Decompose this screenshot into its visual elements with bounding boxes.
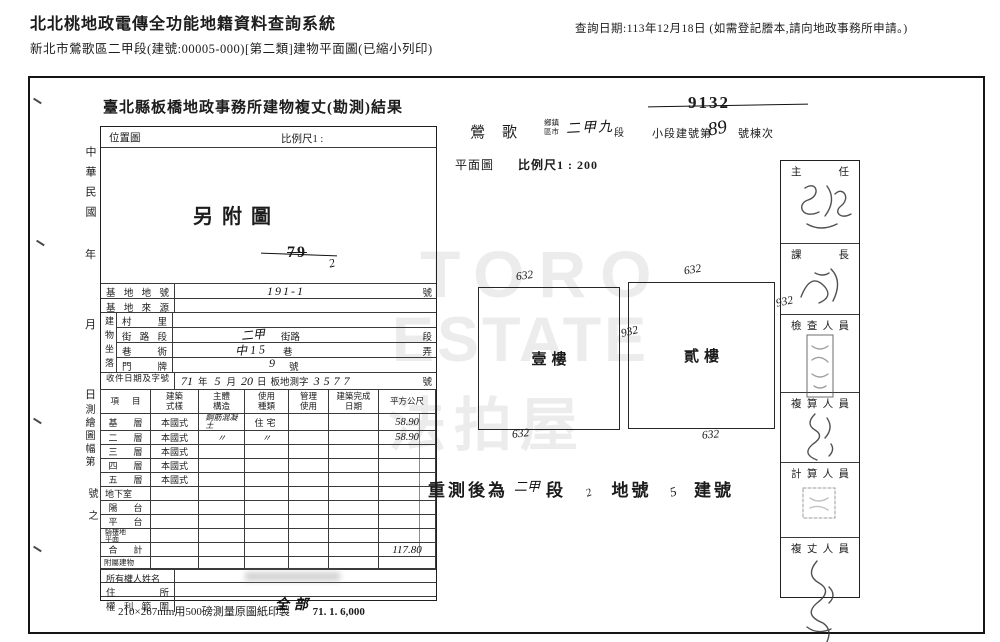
rights-label: 權利範圍 (101, 597, 175, 612)
receipt-code: 板地測字 (271, 374, 309, 388)
floor-row: 四層 本國式 (101, 459, 436, 473)
margin-sheet-no: 號之 (84, 488, 99, 532)
annex-label: 附屬建物 (104, 557, 150, 568)
lot-value: 191-1 (267, 284, 305, 299)
dim-top: 632 (515, 269, 534, 283)
section-unit: 段 (614, 124, 624, 139)
owner-name-label: 所有權人姓名 (101, 570, 175, 582)
floors-header-row: 項目 建築式樣 主體構造 使用種類 管理使用 建築完成日期 平方公尺 (101, 390, 436, 414)
col-mgmt: 管理使用 (289, 390, 329, 414)
situs-group-label: 建物坐落 (101, 313, 117, 372)
query-date-note: 查詢日期:113年12月18日 (如需登記謄本,請向地政事務所申請。) (575, 20, 908, 36)
owner-addr-row: 住所 (101, 583, 436, 597)
lot-source-label: 基地來源 (101, 299, 175, 312)
signoff-label: 複算人員 (791, 396, 849, 411)
floor-style: 本國式 (151, 431, 199, 445)
signoff-section-chief: 主任 (781, 164, 859, 244)
lot-label: 基地地號 (101, 284, 175, 298)
floor-label: 二層 (109, 431, 143, 444)
door-row: 門牌 9 號 (117, 358, 436, 373)
street-row: 街路段 二甲 街路 段 (117, 328, 436, 343)
street-unit: 段 (422, 329, 432, 343)
signoff-label: 主任 (791, 164, 849, 179)
floors-table: 項目 建築式樣 主體構造 使用種類 管理使用 建築完成日期 平方公尺 基層 本國… (100, 389, 436, 569)
resurvey-line: 重測後為 二甲 段 2 地號 5 建號 (428, 476, 734, 501)
signoff-label: 複丈人員 (791, 541, 849, 556)
col-area: 平方公尺 (379, 390, 436, 414)
resurvey-bldg-hand: 5 (668, 483, 678, 500)
signoff-column: 主任 課長 檢查人員 複算人員 (780, 160, 860, 598)
total-row: 合計 117.80 (101, 543, 436, 557)
floorplan-label: 壹樓 (526, 348, 571, 369)
plan-scale-label: 比例尺1 : 200 (518, 156, 598, 173)
floor-label: 平台 (109, 515, 143, 528)
floor-row: 二層 本國式 〃 〃 58.90 (101, 431, 436, 445)
floor-label: 陽台 (109, 501, 143, 514)
col-use-type: 使用種類 (245, 390, 289, 414)
building-number-hand: 89 (706, 117, 729, 142)
location-header: 位置圖 比例尺1 : (101, 127, 436, 148)
resurvey-section-hand: 二甲 (514, 479, 540, 494)
receipt-month: 5 (215, 374, 221, 389)
signature (793, 557, 847, 642)
owner-name-row: 所有權人姓名 (101, 569, 436, 583)
floor-row: 基層 本國式 鋼筋混凝土 住宅 58.90 (101, 414, 436, 431)
margin-year: 年 (85, 246, 96, 262)
signoff-label: 計算人員 (791, 466, 849, 481)
lane-mid: 巷 (283, 344, 293, 358)
floor-label: 基層 (109, 416, 143, 429)
floorplan-label: 貳樓 (679, 345, 724, 366)
lane-value: 中15 (234, 340, 268, 359)
floor-row: 三層 本國式 (101, 445, 436, 459)
receipt-month-unit: 月 (227, 374, 237, 388)
receipt-number: 3577 (314, 374, 354, 389)
village-label: 村里 (117, 313, 173, 327)
form-title: 臺北縣板橋地政事務所建物複丈(勘測)結果 (103, 96, 403, 117)
signoff-section-inspector: 檢查人員 (781, 318, 859, 393)
owner-addr-label: 住所 (101, 583, 175, 596)
village-row: 村里 (117, 313, 436, 328)
floor-use: 住宅 (245, 414, 289, 431)
lane-label: 巷衖 (117, 343, 173, 357)
signoff-section-recheck: 複算人員 (781, 396, 859, 463)
margin-era: 中華民國 (82, 146, 98, 226)
rights-value: 全部 (275, 594, 313, 614)
door-value: 9 (269, 356, 275, 371)
lot-unit: 號 (422, 285, 432, 299)
floor-label: 三層 (109, 445, 143, 458)
col-item: 項目 (101, 390, 151, 414)
location-body: 另附圖 79 2 (101, 148, 436, 284)
resurvey-prefix: 重測後為 (428, 481, 508, 500)
receipt-row: 收件日期及字號 71 年 5 月 20 日 板地測字 3577 號 (101, 373, 436, 390)
margin-month: 月 (85, 316, 96, 332)
system-title: 北北桃地政電傳全功能地籍資料查詢系統 (30, 10, 336, 34)
small-section-bldg-label: 小段建號第 (652, 125, 712, 141)
floor-style: 本國式 (151, 414, 199, 431)
floor-structure: 鋼筋混凝土 (199, 414, 245, 431)
floor-label: 地下室 (105, 487, 150, 500)
door-label: 門牌 (117, 358, 173, 373)
total-label: 合計 (109, 543, 143, 556)
signature-stamp (801, 486, 841, 526)
receipt-unit: 號 (422, 374, 432, 388)
lane-unit: 弄 (422, 344, 432, 358)
street-label: 街路段 (117, 328, 173, 342)
section-name-hand: 二甲九 (566, 116, 615, 138)
town-name-stamp: 鶯歌 (470, 121, 534, 142)
struck-building-number: 9132 (688, 93, 730, 113)
receipt-year: 71 (181, 374, 193, 389)
floor-style: 本國式 (151, 459, 199, 473)
floor-row: 陽台 (101, 501, 436, 515)
floor-structure: 〃 (199, 431, 245, 445)
lot-value-cell: 191-1 號 (175, 284, 436, 298)
floor-row: 平台 (101, 515, 436, 529)
floorplan-first-floor: 壹樓 (478, 287, 620, 430)
signature (795, 410, 845, 462)
redacted-owner-name (245, 572, 340, 581)
floor-row: 地下室 (101, 487, 436, 501)
lane-row: 巷衖 中15 巷 弄 (117, 343, 436, 358)
survey-form: 位置圖 比例尺1 : 另附圖 79 2 基地地號 191-1 號 基地來源 建物… (100, 126, 437, 601)
floor-style: 本國式 (151, 473, 199, 487)
town-unit-label: 鄉鎮區市 (544, 119, 561, 136)
door-unit: 號 (289, 359, 299, 373)
floor-label: 騎樓地平面 (105, 529, 131, 542)
signature (791, 261, 851, 313)
signoff-section-supervisor: 課長 (781, 247, 859, 315)
floor-row: 騎樓地平面 (101, 529, 436, 543)
signoff-section-calculator: 計算人員 (781, 466, 859, 538)
col-completed: 建築完成日期 (329, 390, 379, 414)
annex-row: 附屬建物 (101, 557, 436, 569)
signature (789, 178, 853, 240)
dim-bottom: 632 (702, 428, 720, 441)
receipt-year-unit: 年 (198, 374, 208, 388)
floorplan-second-floor: 貳樓 (628, 282, 775, 429)
floor-area: 58.90 (379, 431, 436, 445)
street-mid: 街路 (281, 329, 300, 343)
margin-sheet-label: 測繪圖幅第 (81, 404, 96, 469)
plan-view-label: 平面圖 (455, 156, 494, 173)
situs-group: 建物坐落 村里 街路段 二甲 街路 段 巷衖 中15 (101, 313, 436, 373)
lot-number-row: 基地地號 191-1 號 (101, 284, 436, 299)
receipt-day-unit: 日 (257, 374, 267, 388)
floor-use: 〃 (245, 431, 289, 445)
building-suffix-label: 號棟次 (738, 125, 774, 141)
total-area: 117.80 (379, 543, 436, 557)
receipt-label: 收件日期及字號 (101, 373, 175, 389)
margin-day: 日 (85, 386, 96, 402)
signoff-label: 課長 (791, 247, 849, 262)
handwritten-mark: 2 (327, 255, 336, 271)
floor-style: 本國式 (151, 445, 199, 459)
land-record-query-page: 北北桃地政電傳全功能地籍資料查詢系統 新北市鶯歌區二甲段(建號:00005-00… (0, 0, 1000, 642)
floor-label: 四層 (109, 459, 143, 472)
floor-area: 58.90 (379, 414, 436, 431)
signature-stamp (805, 334, 837, 400)
location-label: 位置圖 (101, 127, 141, 147)
document-subtitle: 新北市鶯歌區二甲段(建號:00005-000)[第二類]建物平面圖(已縮小列印) (30, 38, 433, 57)
col-structure: 主體構造 (199, 390, 245, 414)
location-scale-label: 比例尺1 : (281, 131, 323, 146)
resurvey-bldg-unit: 建號 (694, 481, 734, 500)
signoff-section-surveyor: 複丈人員 (781, 541, 859, 617)
signoff-label: 檢查人員 (791, 318, 849, 333)
rights-row: 權利範圍 全部 (101, 597, 436, 612)
resurvey-section-unit: 段 (546, 481, 566, 500)
floor-label: 五層 (109, 473, 143, 486)
resurvey-lot-unit: 地號 (612, 481, 652, 500)
attached-map-stamp: 另附圖 (193, 200, 280, 229)
lot-source-row: 基地來源 (101, 299, 436, 313)
resurvey-lot-hand: 2 (584, 486, 593, 499)
receipt-day: 20 (241, 374, 253, 389)
floor-row: 五層 本國式 (101, 473, 436, 487)
col-style: 建築式樣 (151, 390, 199, 414)
